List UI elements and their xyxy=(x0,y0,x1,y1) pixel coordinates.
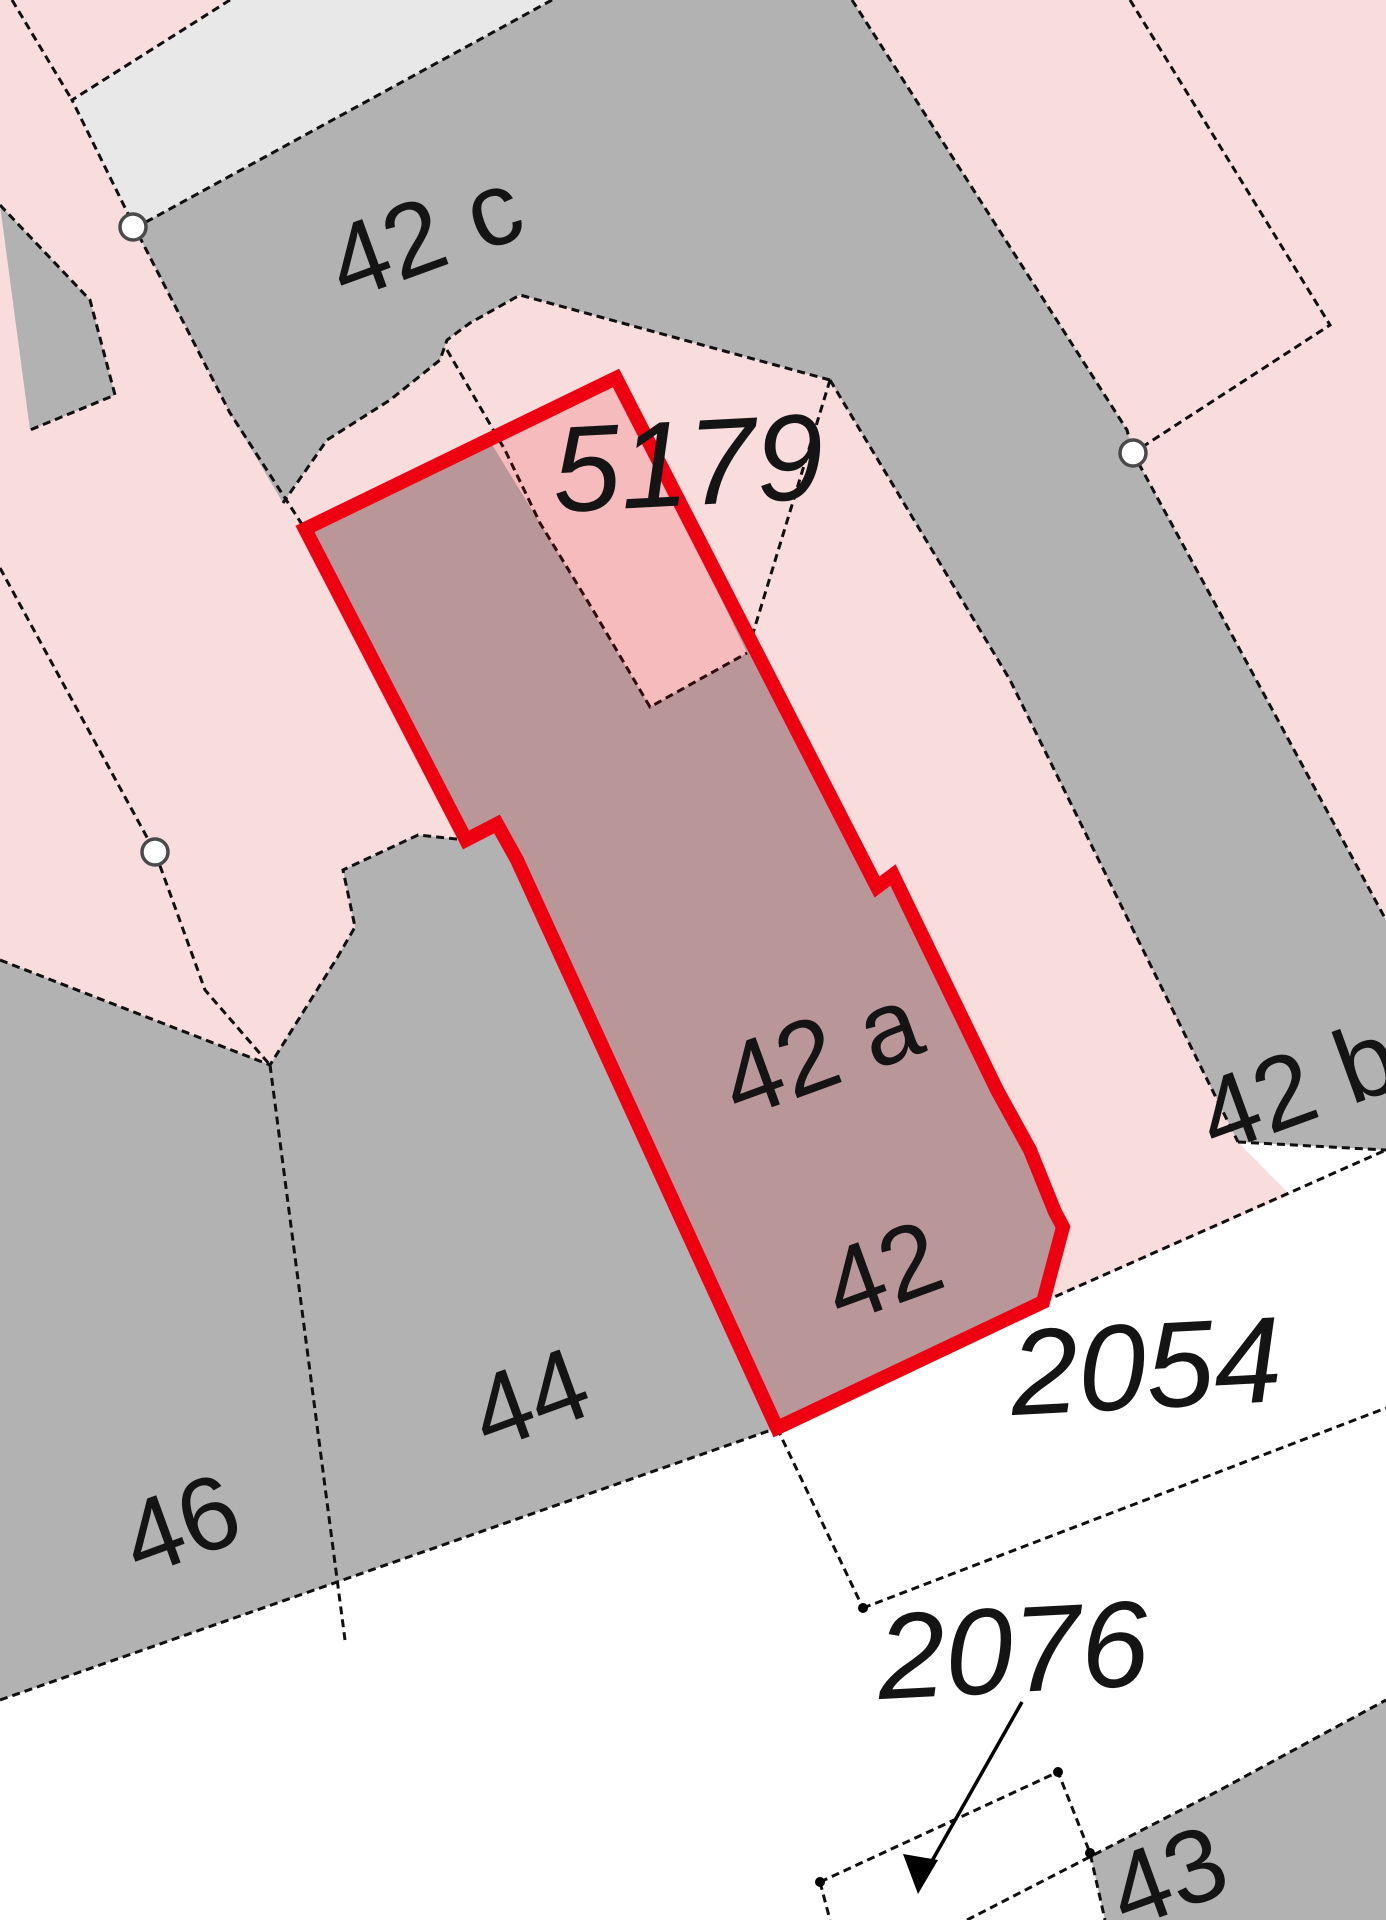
map-viewport: 42 c 5179 42 a 42 42 b 44 46 2054 2076 4… xyxy=(0,0,1386,1920)
boundary-point-icon xyxy=(1120,440,1146,466)
parcel-number-5179: 5179 xyxy=(549,388,827,538)
cadastral-map: 42 c 5179 42 a 42 42 b 44 46 2054 2076 4… xyxy=(0,0,1386,1920)
boundary-point-icon xyxy=(120,214,146,240)
parcel-number-2054: 2054 xyxy=(1006,1291,1285,1441)
boundary-point-icon xyxy=(142,839,168,865)
parcel-number-2076: 2076 xyxy=(873,1575,1152,1725)
